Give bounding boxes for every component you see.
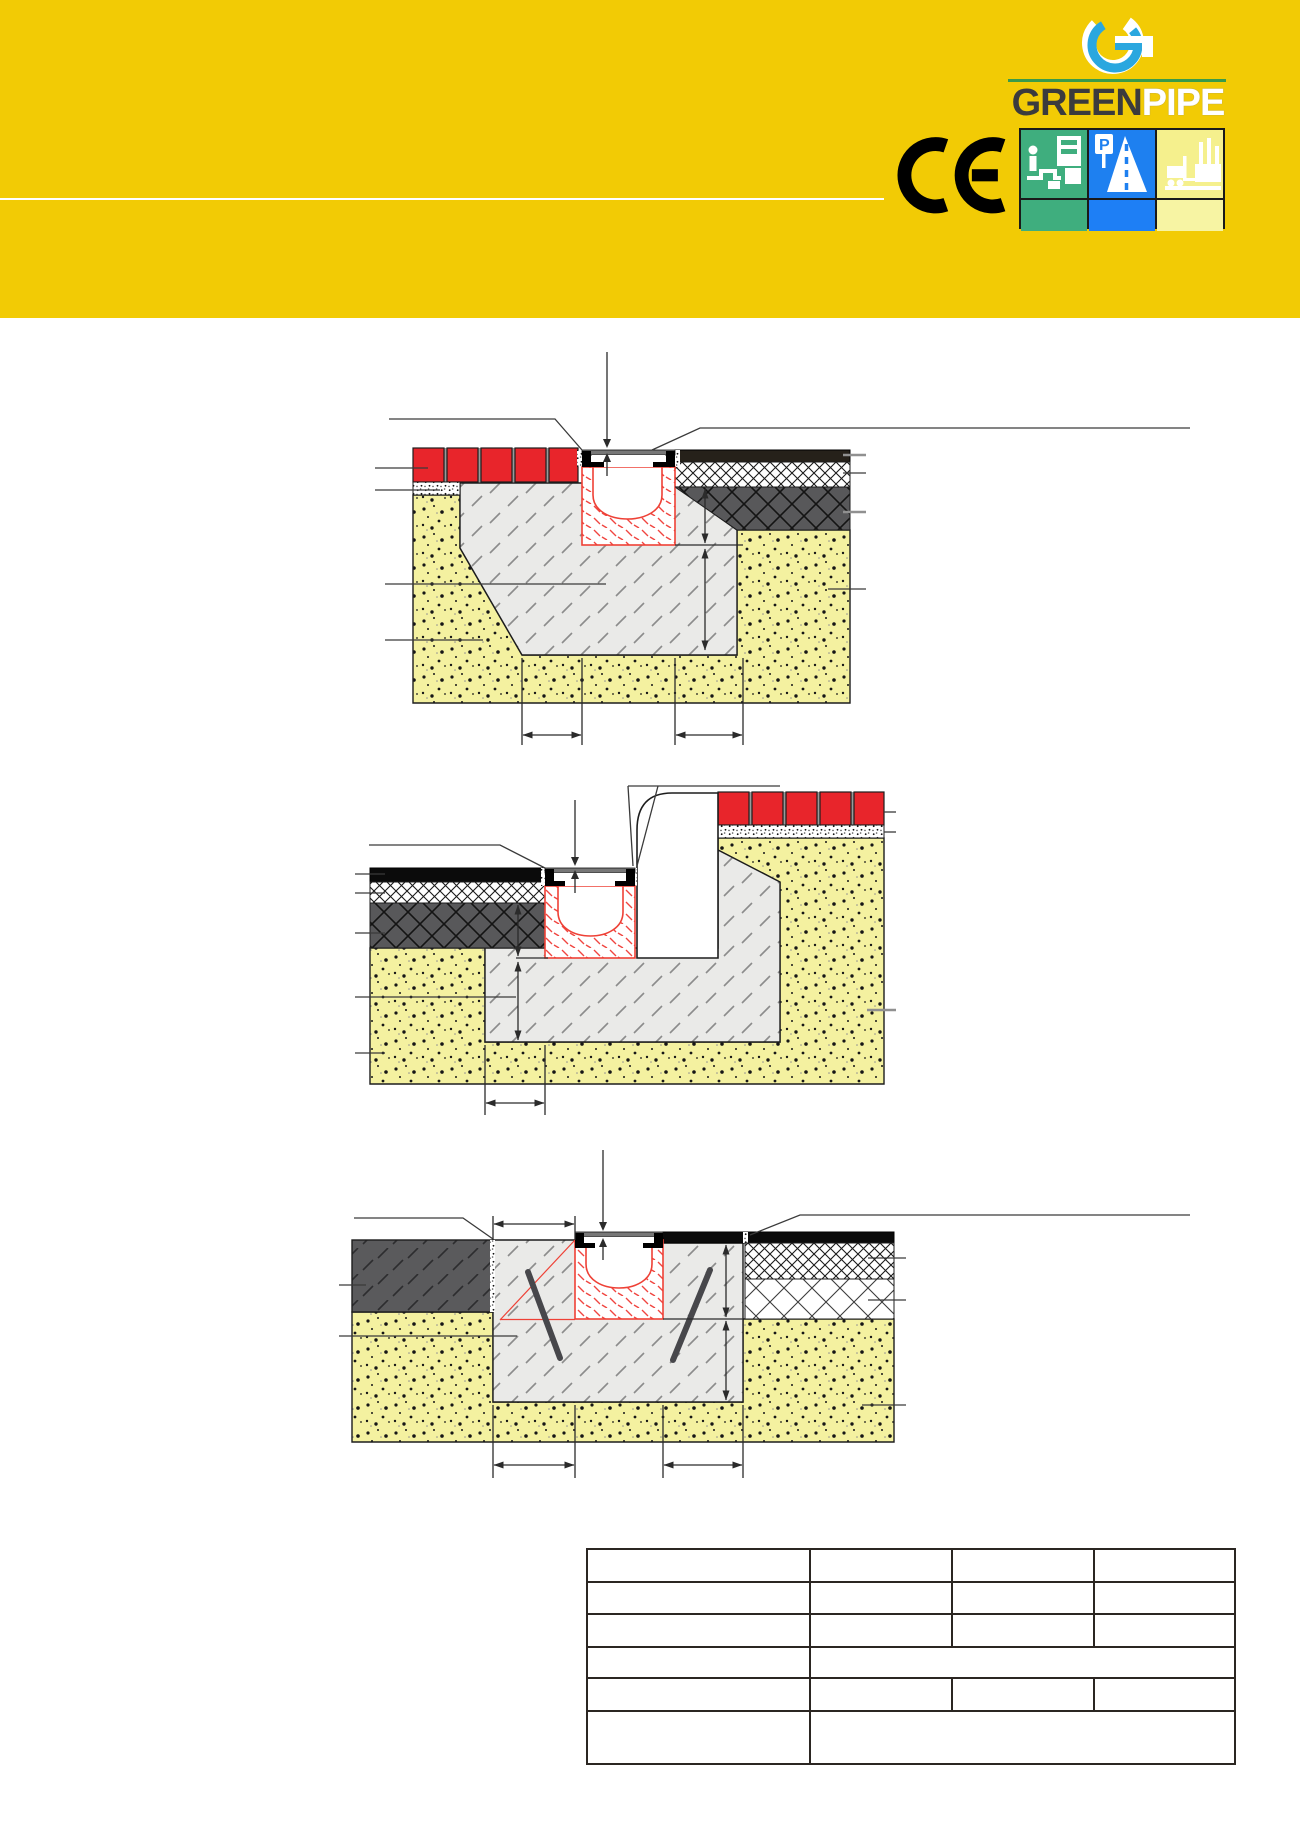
table-cell-merged — [810, 1711, 1235, 1764]
table-cell — [952, 1678, 1094, 1711]
table-cell — [587, 1678, 810, 1711]
table-cell — [952, 1582, 1094, 1614]
grate-bar — [575, 1232, 663, 1237]
table-cell — [810, 1678, 952, 1711]
table-cell — [810, 1614, 952, 1647]
table-cell — [1094, 1582, 1235, 1614]
table-cell — [587, 1582, 810, 1614]
asphalt-pavement-layers — [370, 868, 545, 948]
table-cell — [587, 1711, 810, 1764]
table-cell — [1094, 1678, 1235, 1711]
table-cell — [952, 1549, 1094, 1582]
grate-bar — [545, 868, 635, 873]
diagram-block-paving-installation — [375, 352, 1190, 745]
table-cell — [587, 1647, 810, 1678]
asphalt-slab — [352, 1240, 495, 1312]
table-cell — [1094, 1614, 1235, 1647]
table-cell — [587, 1549, 810, 1582]
drainage-channel — [577, 450, 680, 545]
table-cell — [587, 1614, 810, 1647]
table-cell — [810, 1549, 952, 1582]
diagram-curb-asphalt-installation — [355, 786, 896, 1115]
table-cell-merged — [810, 1647, 1235, 1678]
grate-bar — [582, 450, 675, 455]
table-cell — [810, 1582, 952, 1614]
block-pavers — [718, 792, 884, 838]
diagram-reinforced-concrete-installation — [339, 1150, 1190, 1478]
specification-table — [586, 1548, 1236, 1765]
table-cell — [1094, 1549, 1235, 1582]
table-cell — [952, 1614, 1094, 1647]
drainage-channel — [541, 868, 637, 958]
drainage-channel — [575, 1232, 663, 1319]
document-page: { "header": { "band_color": "#F2CB05", "… — [0, 0, 1300, 1841]
